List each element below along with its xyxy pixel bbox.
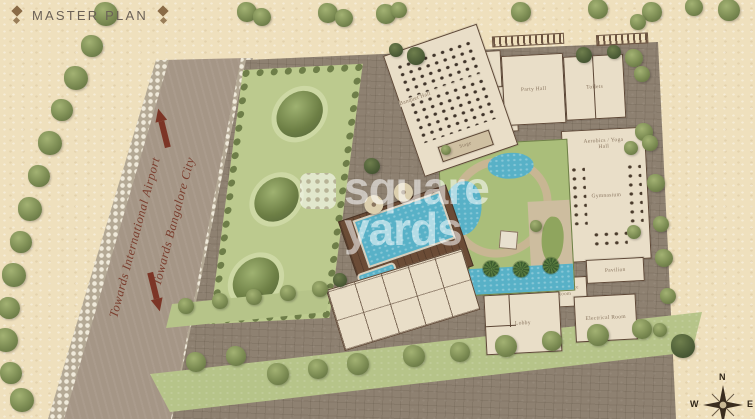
- tree-icon: [0, 328, 18, 352]
- tree-icon: [647, 174, 665, 192]
- tree-icon: [0, 297, 20, 319]
- tree-icon: [588, 0, 608, 19]
- tree-icon: [308, 359, 328, 379]
- tree-icon: [10, 388, 34, 412]
- tree-icon: [542, 331, 562, 351]
- tree-icon: [653, 323, 667, 337]
- tree-icon: [632, 319, 652, 339]
- tree-icon: [718, 0, 740, 21]
- tree-icon: [312, 281, 328, 297]
- tree-icon: [441, 145, 451, 155]
- tree-icon: [38, 131, 62, 155]
- room-label: Electrical Room: [585, 314, 626, 322]
- room-label: Party Hall: [521, 86, 547, 94]
- tree-icon: [642, 135, 658, 151]
- tree-icon: [274, 90, 326, 139]
- pergola: [492, 33, 564, 48]
- room-label: Lobby: [515, 320, 531, 327]
- compass-east: E: [747, 399, 753, 409]
- room-party-hall: Party Hall: [501, 53, 567, 126]
- tree-icon: [18, 197, 42, 221]
- page-title: MASTER PLAN: [32, 8, 148, 23]
- tree-icon: [28, 165, 50, 187]
- tree-icon: [407, 47, 425, 65]
- tree-icon: [450, 342, 470, 362]
- room-toilets: Toilets: [563, 54, 626, 121]
- tree-icon: [576, 47, 592, 63]
- room-label: Gymnasium: [591, 192, 621, 200]
- tree-icon: [530, 220, 542, 232]
- tree-icon: [660, 288, 676, 304]
- decorative-ornament-icon: [157, 6, 170, 25]
- pergola: [596, 32, 649, 46]
- tree-icon: [625, 49, 643, 67]
- tree-icon: [2, 263, 26, 287]
- tree-icon: [624, 141, 638, 155]
- tree-icon: [226, 346, 246, 366]
- room-label: Aerobics / Yoga Hall: [580, 137, 627, 152]
- tree-icon: [630, 14, 646, 30]
- room-label: Pavilion: [605, 267, 626, 274]
- decorative-ornament-icon: [10, 6, 23, 25]
- tree-icon: [511, 2, 531, 22]
- tree-icon: [495, 335, 517, 357]
- tree-icon: [252, 176, 302, 223]
- tree-icon: [81, 35, 103, 57]
- room-pavilion: Pavilion: [586, 257, 645, 284]
- tree-icon: [212, 293, 228, 309]
- tree-icon: [186, 352, 206, 372]
- compass-west: W: [690, 399, 699, 409]
- tree-icon: [389, 43, 403, 57]
- gazebo: [499, 230, 519, 250]
- tree-icon: [671, 334, 695, 358]
- tree-icon: [335, 9, 353, 27]
- watermark-line2: yards: [344, 209, 489, 250]
- tree-icon: [685, 0, 703, 16]
- compass-north: N: [719, 372, 726, 382]
- master-plan-canvas: Kitchen Lobby Party Hall Toilets Aerobic…: [0, 0, 755, 419]
- tree-icon: [653, 216, 669, 232]
- tree-icon: [634, 66, 650, 82]
- tree-icon: [607, 45, 621, 59]
- tree-icon: [655, 249, 673, 267]
- tree-icon: [51, 99, 73, 121]
- header: MASTER PLAN: [10, 6, 170, 25]
- tree-icon: [280, 285, 296, 301]
- tree-icon: [0, 362, 22, 384]
- compass-rose: [701, 383, 745, 419]
- tree-icon: [333, 273, 347, 287]
- tree-icon: [403, 345, 425, 367]
- tree-icon: [347, 353, 369, 375]
- tree-icon: [64, 66, 88, 90]
- watermark: square yards: [300, 168, 489, 251]
- tree-icon: [10, 231, 32, 253]
- tree-icon: [391, 2, 407, 18]
- tree-icon: [178, 298, 194, 314]
- tree-icon: [267, 363, 289, 385]
- tree-icon: [253, 8, 271, 26]
- watermark-logo-icon: [300, 173, 336, 209]
- tree-icon: [246, 289, 262, 305]
- tree-icon: [587, 324, 609, 346]
- tree-icon: [627, 225, 641, 239]
- compass-icon: N W E S: [701, 383, 745, 419]
- room-gym-wing: Aerobics / Yoga Hall Gymnasium: [561, 127, 652, 263]
